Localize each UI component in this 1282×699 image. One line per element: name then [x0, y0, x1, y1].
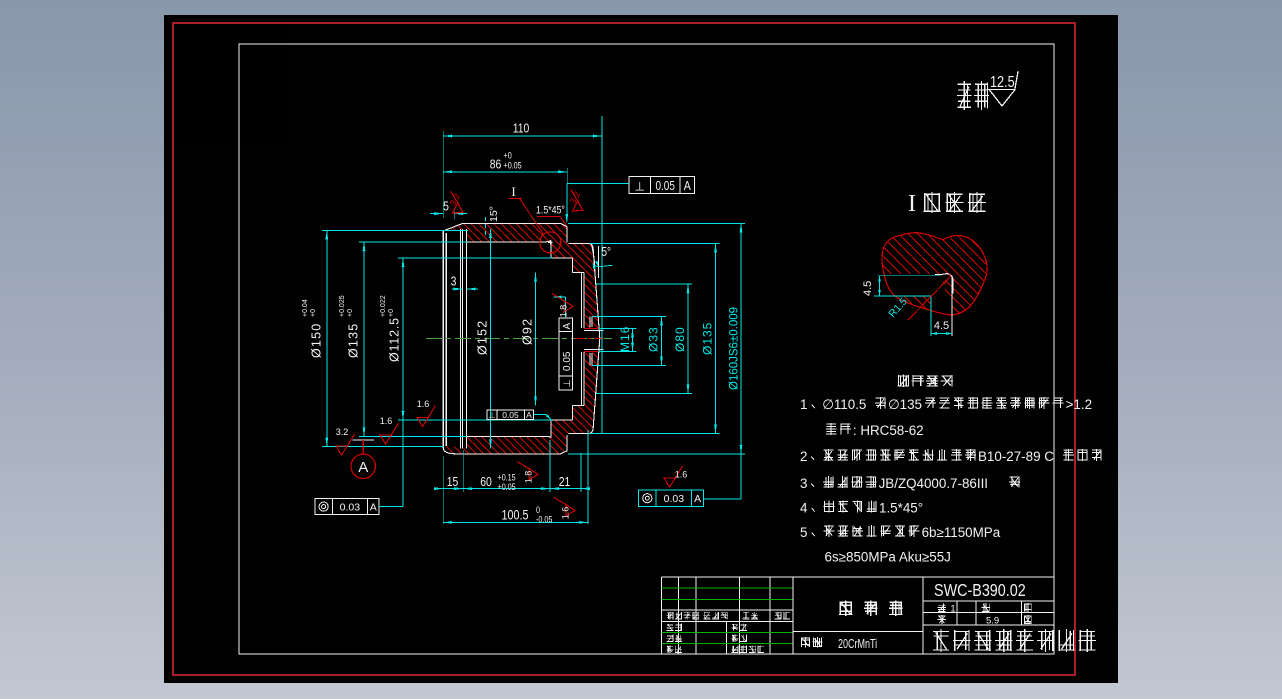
svg-text:Ø33: Ø33	[647, 326, 661, 352]
svg-text:1.6: 1.6	[561, 507, 571, 520]
svg-text:1.8: 1.8	[524, 471, 534, 484]
svg-text:Ø92: Ø92	[521, 318, 535, 345]
svg-text:+0.022: +0.022	[380, 295, 387, 317]
svg-text:4: 4	[800, 501, 808, 516]
svg-text:1: 1	[951, 604, 956, 614]
svg-text:∅135: ∅135	[888, 397, 922, 412]
svg-text:+0.15: +0.15	[498, 473, 517, 483]
svg-text:0: 0	[536, 505, 540, 515]
svg-text:A: A	[526, 410, 532, 420]
svg-text:*: *	[948, 272, 952, 282]
svg-text:-0.05: -0.05	[536, 515, 553, 525]
svg-text:∅110.5: ∅110.5	[822, 397, 866, 412]
svg-text:M16: M16	[618, 326, 632, 352]
svg-text:Ø152: Ø152	[476, 320, 490, 355]
svg-text:0.05: 0.05	[502, 410, 519, 420]
svg-text:1.5*45°: 1.5*45°	[536, 205, 565, 217]
svg-text:JB/ZQ4000.7-86III: JB/ZQ4000.7-86III	[879, 476, 988, 491]
svg-text:+0: +0	[388, 309, 395, 317]
svg-text:0.05: 0.05	[562, 351, 573, 371]
svg-text:3: 3	[451, 274, 457, 288]
svg-text:1.6: 1.6	[675, 470, 688, 480]
svg-text:86: 86	[490, 157, 502, 171]
svg-text:⊥: ⊥	[634, 180, 644, 194]
svg-text:: HRC58-62: : HRC58-62	[853, 423, 924, 438]
svg-text:5°: 5°	[602, 246, 612, 259]
svg-text:+0: +0	[347, 309, 354, 317]
svg-text:1.5*45°: 1.5*45°	[879, 501, 923, 516]
svg-text:A: A	[694, 493, 701, 505]
svg-text:+0.025: +0.025	[339, 295, 346, 317]
svg-text:5: 5	[800, 525, 807, 540]
svg-text:⊥: ⊥	[562, 379, 573, 387]
svg-text:6s≥850MPa Aku≥55J: 6s≥850MPa Aku≥55J	[825, 550, 951, 565]
svg-text:B10-27-89 C: B10-27-89 C	[978, 449, 1054, 464]
svg-text:0.05: 0.05	[655, 180, 674, 193]
svg-text:A: A	[358, 459, 368, 476]
svg-text:21: 21	[559, 475, 571, 489]
svg-text:15: 15	[447, 475, 459, 489]
svg-text:A: A	[562, 323, 573, 330]
svg-text:15°: 15°	[488, 206, 500, 222]
svg-text:Ø80: Ø80	[673, 326, 687, 352]
svg-text:A: A	[370, 501, 377, 513]
svg-text:3: 3	[800, 476, 807, 491]
svg-text:0.03: 0.03	[664, 493, 685, 505]
svg-text:6b≥1150MPa: 6b≥1150MPa	[922, 525, 1001, 540]
svg-text:5.9: 5.9	[986, 616, 999, 627]
svg-text:+0.05: +0.05	[504, 161, 523, 171]
svg-text:Ø135: Ø135	[701, 322, 715, 355]
svg-text:1: 1	[800, 397, 807, 412]
svg-text:+0: +0	[504, 151, 513, 161]
svg-text:4.5: 4.5	[862, 281, 874, 296]
svg-text:A: A	[684, 179, 691, 193]
svg-text:⊥: ⊥	[489, 411, 496, 420]
svg-text:1.6: 1.6	[417, 399, 430, 409]
svg-text:12.5: 12.5	[990, 74, 1015, 91]
svg-text:I: I	[908, 191, 916, 217]
svg-text:+0.05: +0.05	[498, 482, 517, 492]
svg-text:I: I	[511, 184, 515, 199]
svg-text:Ø160JS6±0.009: Ø160JS6±0.009	[729, 307, 741, 390]
svg-text:+0.04: +0.04	[302, 299, 309, 317]
svg-text:20CrMnTi: 20CrMnTi	[838, 638, 877, 652]
svg-text:4.5: 4.5	[934, 320, 949, 332]
svg-text:100.5: 100.5	[501, 507, 528, 522]
svg-text:Ø112.5: Ø112.5	[388, 317, 402, 362]
svg-text:60: 60	[480, 475, 492, 489]
svg-text:0.03: 0.03	[340, 501, 361, 513]
svg-text:+0: +0	[310, 309, 317, 317]
svg-text:SWC-B390.02: SWC-B390.02	[934, 582, 1026, 601]
svg-text:1.8: 1.8	[559, 305, 569, 318]
svg-text:2: 2	[800, 449, 807, 464]
svg-text:3.2: 3.2	[336, 427, 349, 437]
svg-text:Ø135: Ø135	[347, 323, 361, 358]
svg-text:>1.2: >1.2	[1066, 397, 1092, 412]
svg-text:Ø150: Ø150	[310, 323, 324, 358]
svg-text:110: 110	[513, 121, 530, 135]
svg-text:1.6: 1.6	[380, 416, 393, 426]
